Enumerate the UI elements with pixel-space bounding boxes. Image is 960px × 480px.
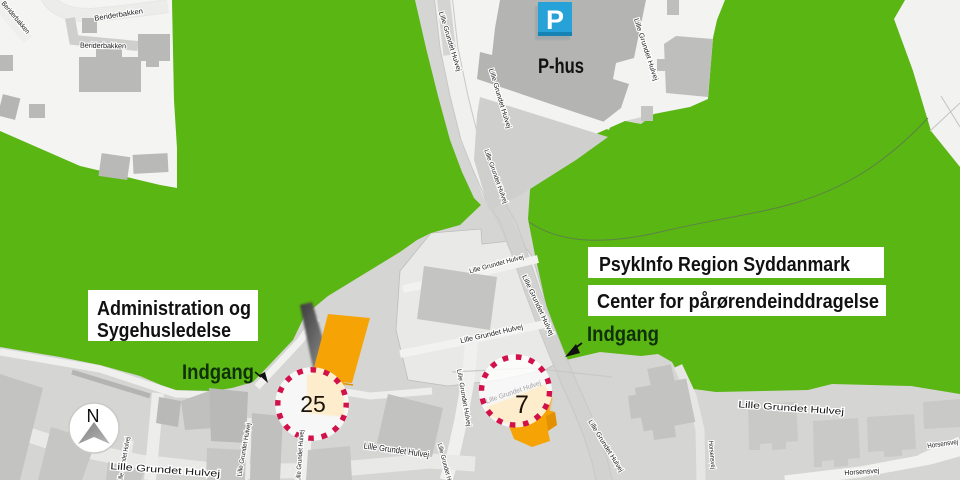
svg-text:Indgang: Indgang: [182, 361, 254, 384]
svg-text:Administration og: Administration og: [97, 298, 251, 320]
svg-text:Indgang: Indgang: [587, 323, 659, 346]
svg-text:P: P: [546, 5, 564, 35]
svg-text:N: N: [87, 406, 100, 426]
svg-text:Center for pårørendeinddragels: Center for pårørendeinddragelse: [597, 290, 879, 313]
svg-text:P-hus: P-hus: [538, 55, 584, 78]
svg-text:PsykInfo Region Syddanmark: PsykInfo Region Syddanmark: [599, 254, 851, 276]
svg-text:25: 25: [300, 391, 326, 417]
svg-text:Sygehusledelse: Sygehusledelse: [97, 320, 231, 342]
svg-text:Beriderbakken: Beriderbakken: [80, 41, 126, 51]
svg-text:7: 7: [515, 391, 529, 419]
